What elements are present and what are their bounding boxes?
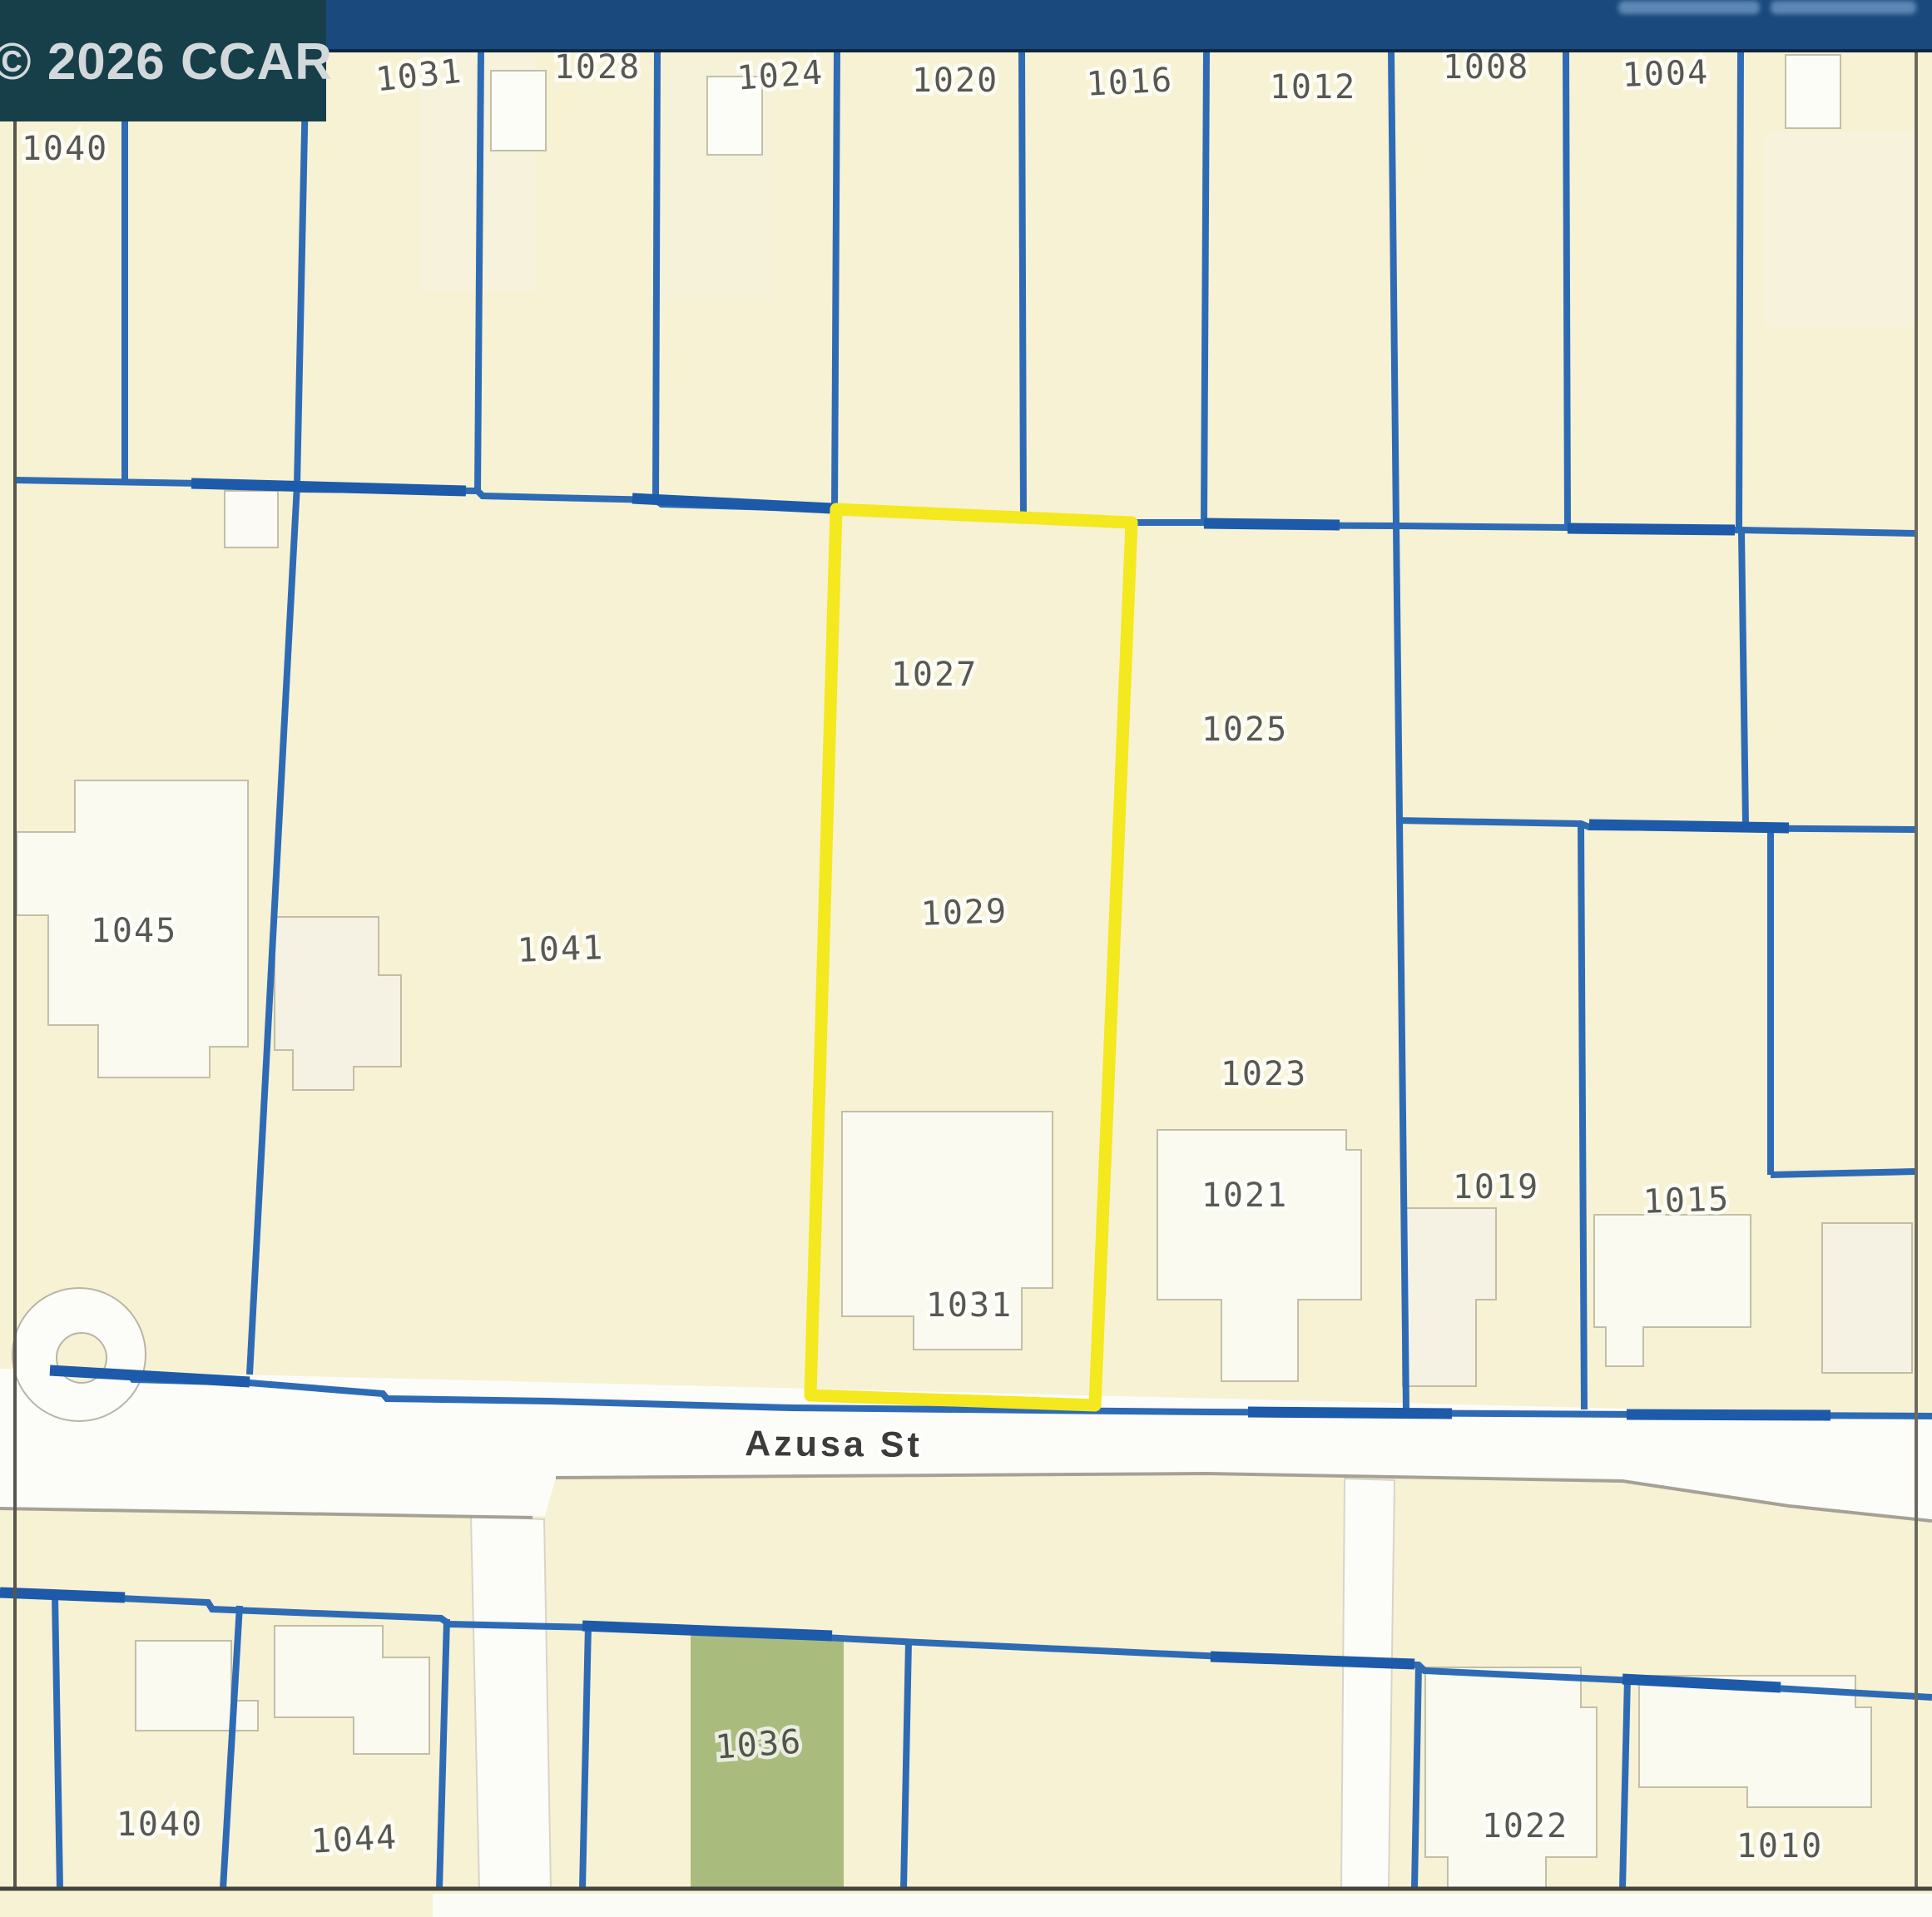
parcel-label-highlight: 1029: [920, 892, 1008, 934]
parcel-label: 1010: [1736, 1827, 1823, 1865]
parcel-label: 1024: [736, 53, 825, 97]
parcel-label: 1016: [1086, 61, 1175, 103]
parcel-label: 1008: [1443, 48, 1529, 87]
parcel-label: 1022: [1482, 1807, 1568, 1845]
parcel-label: 1025: [1201, 711, 1288, 749]
cul-de-sac: [12, 1288, 146, 1421]
building-1010-south: [1639, 1676, 1871, 1807]
parcel-label: 1012: [1270, 68, 1356, 106]
side-road-right: [1341, 1479, 1395, 1889]
parcel-label: 1040: [22, 130, 108, 168]
building-top-right: [1786, 55, 1840, 128]
building-1028: [491, 71, 546, 151]
topbar-cropped-text: [1771, 1, 1916, 14]
parcel-label: 1021: [1201, 1176, 1288, 1215]
building-ghost: [1764, 131, 1915, 327]
parcel-label: 1020: [912, 62, 998, 100]
parcel-label: 1036: [714, 1722, 803, 1766]
parcel-label: 1023: [1221, 1055, 1307, 1093]
copyright-badge: © 2026 CCAR: [0, 0, 333, 121]
parcel-map-canvas[interactable]: 1040 1031 1028 1024 1020 1016 1012 1008 …: [0, 0, 1932, 1917]
parcel-map-screenshot: 1040 1031 1028 1024 1020 1016 1012 1008 …: [0, 0, 1932, 1917]
parcel-label: 1040: [116, 1806, 203, 1844]
parcel-label: 1004: [1622, 53, 1710, 95]
parcel-label: 1044: [310, 1818, 399, 1860]
side-road-left: [471, 1516, 551, 1889]
topbar-cropped-text: [1618, 1, 1760, 14]
building-right-edge: [1822, 1223, 1912, 1373]
parcel-label: 1045: [91, 912, 177, 950]
parcel-label: 1019: [1453, 1168, 1539, 1206]
parcel-label-highlight: 1027: [891, 656, 978, 694]
building-small-boundary: [225, 491, 278, 547]
copyright-text: © 2026 CCAR: [0, 33, 333, 91]
parcel-label: 1015: [1642, 1180, 1731, 1221]
building-1022-south: [1425, 1667, 1597, 1889]
parcel-label: 1028: [554, 48, 641, 87]
parcel-label-highlight: 1031: [926, 1286, 1013, 1325]
street-label: Azusa St: [745, 1424, 923, 1465]
parcel-label: 1041: [517, 929, 605, 970]
